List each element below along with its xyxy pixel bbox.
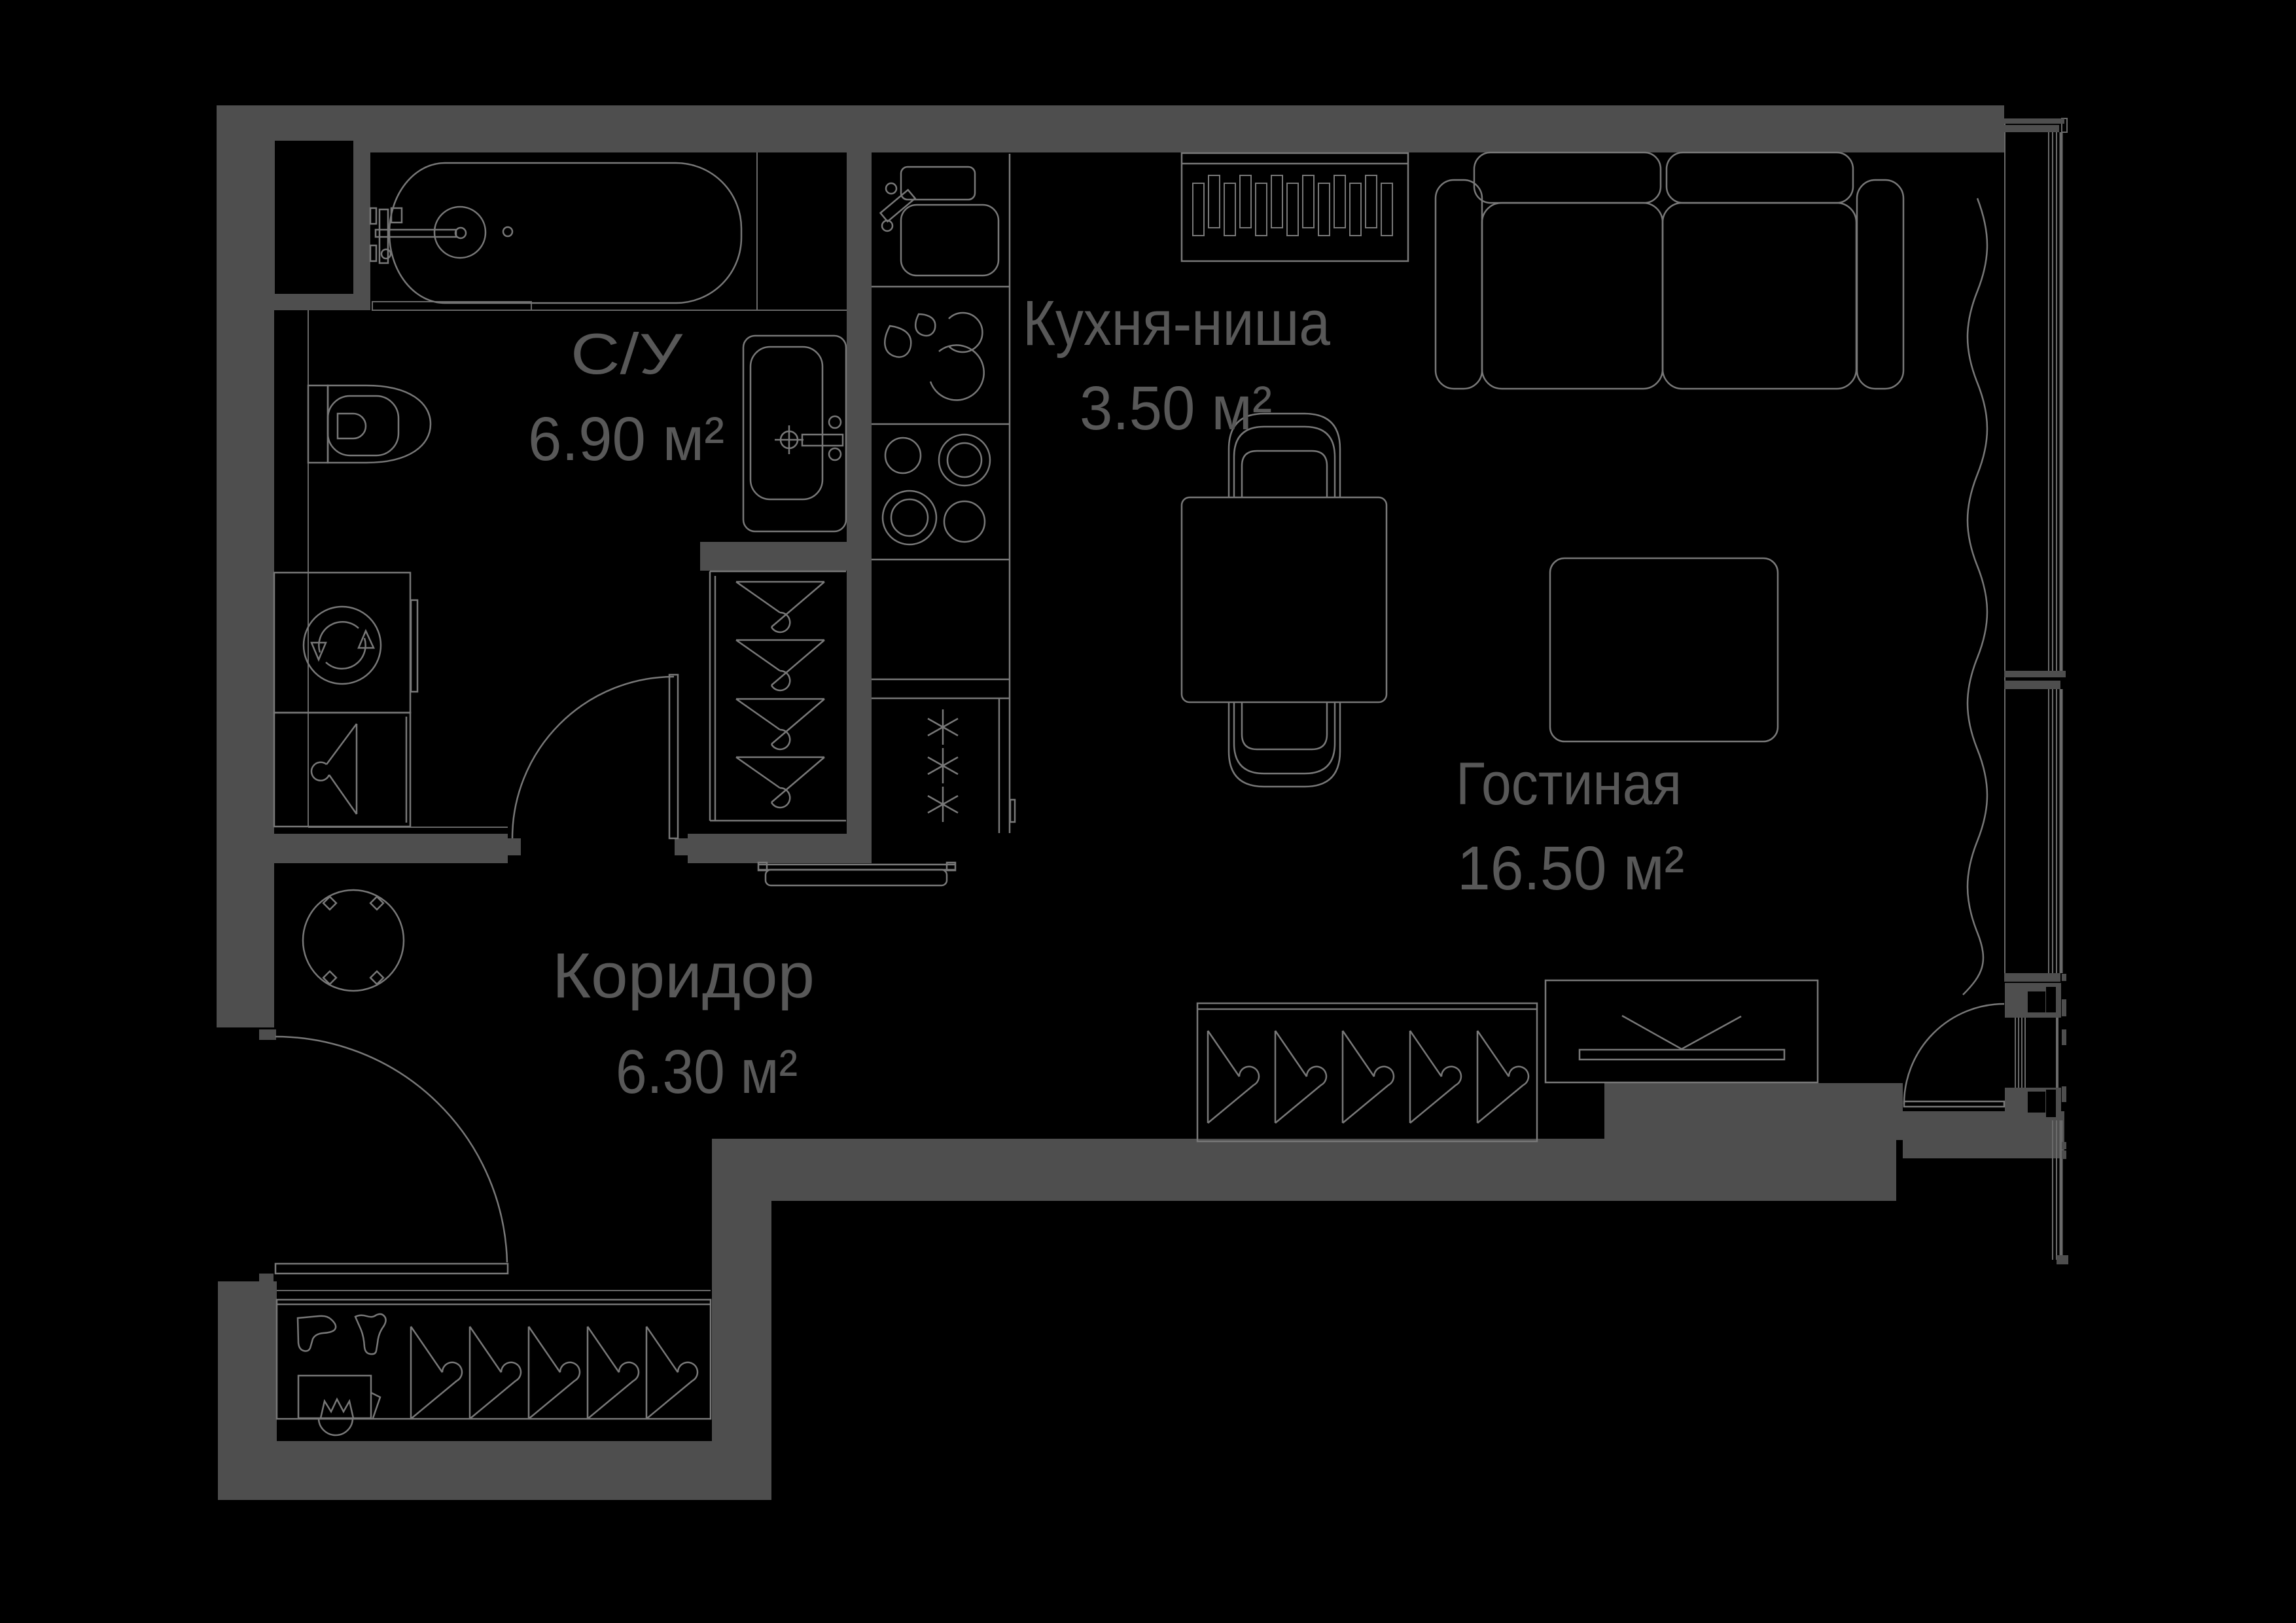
svg-text:16.50 м²: 16.50 м² (1457, 834, 1684, 903)
svg-text:Коридор: Коридор (552, 940, 815, 1011)
svg-text:Кухня-ниша: Кухня-ниша (1023, 287, 1330, 359)
svg-text:Гостиная: Гостиная (1456, 751, 1682, 817)
svg-text:6.30 м²: 6.30 м² (616, 1037, 798, 1107)
svg-text:С/У: С/У (571, 321, 683, 386)
svg-text:6.90 м²: 6.90 м² (528, 404, 724, 474)
svg-text:3.50 м²: 3.50 м² (1080, 374, 1272, 443)
